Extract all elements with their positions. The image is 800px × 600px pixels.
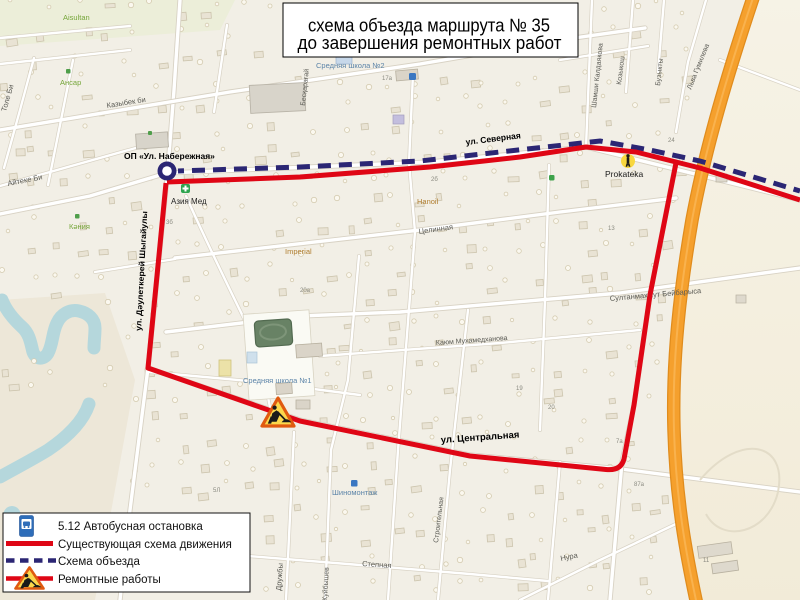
svg-text:Схема объезда: Схема объезда bbox=[58, 556, 140, 568]
svg-text:Азия Мед: Азия Мед bbox=[171, 197, 207, 206]
svg-text:11: 11 bbox=[703, 558, 710, 564]
svg-text:Aisultan: Aisultan bbox=[63, 13, 90, 22]
svg-text:17а: 17а bbox=[382, 76, 393, 82]
svg-text:Imperial: Imperial bbox=[285, 247, 312, 256]
svg-text:3б: 3б bbox=[166, 220, 173, 226]
svg-text:20а: 20а bbox=[300, 288, 311, 294]
svg-text:Средняя школа №2: Средняя школа №2 bbox=[316, 61, 385, 70]
svg-text:Prokateka: Prokateka bbox=[605, 169, 644, 179]
svg-text:5Л: 5Л bbox=[213, 488, 220, 494]
svg-text:19: 19 bbox=[516, 386, 523, 392]
svg-text:Существующая схема движения: Существующая схема движения bbox=[58, 539, 232, 551]
svg-text:20: 20 bbox=[548, 405, 555, 411]
svg-text:13: 13 bbox=[608, 226, 615, 232]
svg-text:87а: 87а bbox=[634, 482, 645, 488]
svg-text:Hanoil: Hanoil bbox=[417, 197, 439, 206]
svg-text:до завершения ремонтных работ: до завершения ремонтных работ bbox=[298, 32, 562, 53]
svg-text:Средняя школа №1: Средняя школа №1 bbox=[243, 376, 312, 385]
svg-text:Ансар: Ансар bbox=[60, 78, 81, 87]
svg-text:Кәния: Кәния bbox=[69, 222, 90, 231]
svg-text:24: 24 bbox=[668, 138, 675, 144]
svg-text:Ремонтные работы: Ремонтные работы bbox=[58, 574, 161, 586]
svg-text:Шиномонтаж: Шиномонтаж bbox=[332, 488, 377, 497]
svg-text:7а: 7а bbox=[616, 439, 623, 445]
svg-text:ОП «Ул. Набережная»: ОП «Ул. Набережная» bbox=[124, 151, 215, 161]
svg-text:2б: 2б bbox=[431, 177, 438, 183]
svg-text:5.12 Автобусная остановка: 5.12 Автобусная остановка bbox=[58, 521, 203, 533]
